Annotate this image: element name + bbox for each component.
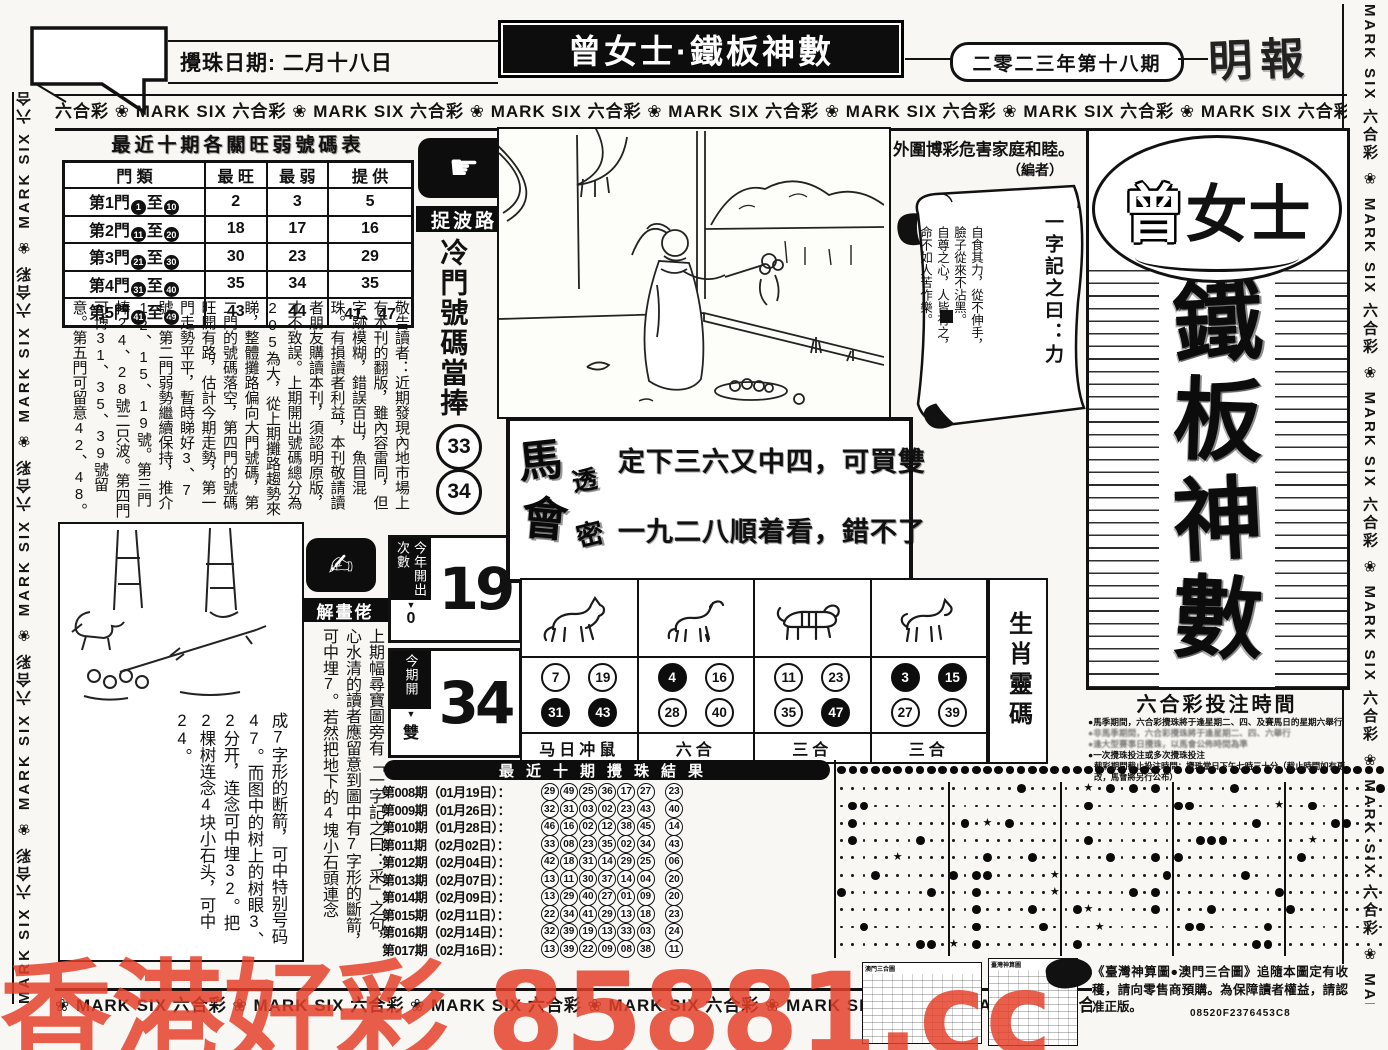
special-star: ★ [1308, 835, 1318, 846]
special-number-ball: 14 [665, 818, 683, 836]
drawn-dot [1106, 853, 1115, 862]
horse-sketch-icon [522, 580, 637, 658]
tiger-sketch-icon [755, 580, 870, 658]
number-ball: 42 [541, 853, 559, 871]
drawn-dot [1174, 853, 1183, 862]
special-number-ball: 23 [665, 905, 683, 923]
hot-cold-header-row: 門 類最 旺最 弱提 供 [64, 162, 413, 189]
jockey-club-stamp: 馬會透密 [510, 421, 614, 579]
number-ball: 29 [541, 783, 559, 801]
brand-name: 曾女士 [1122, 164, 1311, 254]
drawn-dot [1151, 888, 1160, 897]
gate-cell: 第3門21至30 [64, 243, 205, 271]
number-ball: 04 [637, 870, 655, 888]
number-ball: 16 [560, 818, 578, 836]
result-row: 第012期（02月04日）：42183114292506 [382, 853, 832, 871]
writing-hand-icon: ✍ [306, 538, 376, 592]
zodiac-ball: 35 [774, 698, 803, 727]
special-star: ★ [893, 852, 903, 863]
number-ball: 30 [579, 870, 597, 888]
betting-bullet: ●一次攪珠投注或多次攪珠投注 [1088, 750, 1346, 761]
number-ball: 27 [637, 783, 655, 801]
number-ball: 01 [617, 888, 635, 906]
special-star: ★ [1274, 800, 1284, 811]
period-label: 今期開 [403, 651, 420, 709]
number-ball: 23 [579, 835, 597, 853]
number-ball: 25 [637, 853, 655, 871]
special-number-ball: 20 [665, 888, 683, 906]
drawn-dot [1174, 802, 1183, 811]
zodiac-numbers: 11233547 [755, 658, 870, 734]
special-number-ball: 20 [665, 870, 683, 888]
scroll-line: 自尊之心，人皆有之， [933, 226, 950, 401]
drawn-dot [1028, 905, 1037, 914]
drawn-dot [961, 819, 970, 828]
result-row: 第010期（01月28日）：46160212384514 [382, 818, 832, 836]
period-number: 34 [431, 651, 519, 755]
range-ball: 20 [164, 227, 179, 242]
number-ball: 02 [617, 835, 635, 853]
number-ball: 09 [637, 888, 655, 906]
hot-cold-row: 第3門21至30302329 [64, 243, 413, 271]
number-ball: 18 [637, 905, 655, 923]
editor-note: 外圍博彩危害家庭和睦。 （編者） [893, 136, 1089, 180]
stat-cell: 3 [267, 188, 329, 216]
special-number-ball: 43 [665, 835, 683, 853]
special-number-ball: 06 [665, 853, 683, 871]
hot-cold-row: 第4門31至40353435 [64, 271, 413, 299]
drawn-dot [983, 853, 992, 862]
reader-notice: 敬告讀者：近期發現內地市場上有本刊的翻版，雖內容雷同，但字跡模糊，錯誤百出，魚目… [62, 298, 412, 520]
number-ball: 02 [598, 800, 616, 818]
betting-bullet: ●非馬季期間，六合彩攪珠將于逢星期二、四、六舉行 [1088, 728, 1346, 739]
editor-note-line2: （編者） [893, 160, 1089, 180]
drawn-dot [1241, 871, 1250, 880]
issue-pill: 二零二三年第十八期 [950, 42, 1184, 82]
range-ball: 10 [164, 200, 179, 215]
drawn-dot [949, 871, 958, 880]
number-ball: 29 [617, 853, 635, 871]
special-number-ball: 40 [665, 800, 683, 818]
stat-cell: 2 [205, 188, 267, 216]
calligraphy-character: 數 [1171, 568, 1264, 670]
zodiac-column: 11233547三合 [753, 580, 870, 762]
hot-cold-row: 第1門1至10235 [64, 188, 413, 216]
brand-oval: 曾女士 [1092, 135, 1342, 283]
zodiac-ball: 43 [588, 698, 617, 727]
range-ball: 1 [131, 200, 146, 215]
zodiac-relation-label: 三合 [755, 734, 870, 762]
drawn-dot [1129, 888, 1138, 897]
drawn-dot [1275, 888, 1284, 897]
result-row: 第013期（02月07日）：13113037140420 [382, 871, 832, 889]
special-star: ★ [1050, 870, 1060, 881]
drawn-dot [1331, 819, 1340, 828]
drawn-dot [848, 802, 857, 811]
stat-cell: 30 [205, 243, 267, 271]
scroll-text: 一字記之曰：力 自食其力，從不伸手，臉子從來不沾黑。自尊之心，人皆有之，命不如人… [916, 212, 1066, 402]
brand-character: 士 [1249, 181, 1312, 250]
drawn-dot [972, 905, 981, 914]
zodiac-side-label: 生肖靈碼 [988, 578, 1048, 764]
number-ball: 46 [541, 818, 559, 836]
zodiac-ball: 3 [891, 663, 920, 692]
draw-date: 攪珠日期: 二月十八日 [168, 47, 393, 77]
betting-bullet: ●馬季期間，六合彩攪珠將于逢星期二、四、及賽馬日的星期六舉行 [1088, 717, 1346, 728]
matrix-row: ★ [836, 832, 1386, 849]
number-ball: 12 [598, 818, 616, 836]
matrix-row: ★ [836, 901, 1386, 918]
gate-cell: 第1門1至10 [64, 188, 205, 216]
result-row: 第015期（02月11日）：22344129131823 [382, 906, 832, 924]
drawn-dot [972, 871, 981, 880]
number-ball: 36 [598, 783, 616, 801]
range-ball: 31 [131, 282, 146, 297]
drawn-dot [848, 836, 857, 845]
drawn-dot [1151, 853, 1160, 862]
betting-bullets: ●馬季期間，六合彩攪珠將于逢星期二、四、及賽馬日的星期六舉行●非馬季期間，六合彩… [1088, 717, 1346, 761]
newspaper-logo: 明報 [1207, 22, 1313, 90]
zodiac-relation-label: 三合 [872, 734, 987, 762]
zodiac-ball: 40 [705, 698, 734, 727]
number-ball: 14 [598, 853, 616, 871]
result-row: 第009期（01月26日）：32310302234340 [382, 801, 832, 819]
drawn-dot [1376, 784, 1385, 793]
number-ball: 34 [560, 905, 578, 923]
drawn-dot [1163, 871, 1172, 880]
drawn-dot [1028, 853, 1037, 862]
stat-cell: 35 [328, 271, 412, 299]
matrix-row: ★ [836, 866, 1386, 883]
drawn-dot [1252, 819, 1261, 828]
main-illustration [497, 127, 891, 419]
zodiac-ball: 19 [588, 663, 617, 692]
stat-cell: 18 [205, 216, 267, 244]
special-star: ★ [983, 818, 993, 829]
number-ball: 29 [598, 905, 616, 923]
drawn-dot [972, 888, 981, 897]
drawn-dot [1129, 784, 1138, 793]
interpreter-badge: 解畫佬 [302, 598, 388, 622]
zodiac-relation-label: 六合 [639, 734, 754, 762]
betting-bullet: ●逢大型賽事日攪珠，以馬會公佈時間為準 [1088, 739, 1346, 750]
matrix-row: ★ [836, 815, 1386, 832]
zodiac-column: 7193143马日冲鼠 [522, 580, 637, 762]
stat-cell: 34 [267, 271, 329, 299]
zodiac-ball: 39 [938, 698, 967, 727]
cold-pick-ball: 34 [436, 469, 482, 515]
brand-panel: 鐵板神數 曾女士 [1086, 128, 1350, 690]
drawn-dot [837, 888, 846, 897]
zodiac-ball: 7 [541, 663, 570, 692]
gate-cell: 第2門11至20 [64, 216, 205, 244]
drawn-dot [1005, 819, 1014, 828]
period-parity: 雙 [403, 719, 419, 743]
number-ball: 43 [637, 800, 655, 818]
drawn-dot [1308, 802, 1317, 811]
zodiac-column: 4162840六合 [637, 580, 754, 762]
drawn-dot [1230, 784, 1239, 793]
number-ball: 02 [579, 818, 597, 836]
scroll-line: 自食其力，從不伸手， [967, 226, 984, 401]
zodiac-number-table: 7193143马日冲鼠4162840六合11233547三合3152739三合 [520, 578, 988, 764]
drawn-dot [927, 888, 936, 897]
drawn-dot [860, 802, 869, 811]
jockey-club-tips-banner: 馬會透密 定下三六又中四，可買雙 一九二八順着看，錯不了 [506, 417, 913, 583]
drawn-dot [1151, 905, 1160, 914]
scroll-lines: 自食其力，從不伸手，臉子從來不沾黑。自尊之心，人皆有之，命不如人苦作樂。 [916, 226, 984, 401]
number-ball: 03 [579, 800, 597, 818]
stamp-character: 會 [519, 481, 571, 551]
gate-cell: 第4門31至40 [64, 271, 205, 299]
zodiac-relation-label: 马日冲鼠 [522, 734, 637, 762]
number-ball: 13 [617, 905, 635, 923]
stat-cell: 17 [267, 216, 329, 244]
tip-line-1: 定下三六又中四，可買雙 [618, 427, 903, 497]
stat-cell: 29 [328, 243, 412, 271]
number-ball: 27 [598, 888, 616, 906]
number-ball: 22 [541, 905, 559, 923]
number-ball: 13 [541, 888, 559, 906]
drawn-dot [1106, 784, 1115, 793]
year-count-box: 今年開出次數 ▼ 0 19 [388, 535, 522, 643]
newspaper-page: MARK SIX 六合彩 ❀ MARK SIX 六合彩 ❀ MARK SIX 六… [0, 0, 1388, 1050]
drawn-dot [1073, 905, 1082, 914]
matrix-row: ★ [836, 797, 1386, 814]
range-ball: 40 [164, 282, 179, 297]
stat-cell: 5 [328, 188, 412, 216]
special-number-ball: 23 [665, 783, 683, 801]
calligraphy-character: 鐵 [1170, 271, 1265, 375]
result-row: 第008期（01月19日）：29492536172723 [382, 783, 832, 801]
number-ball: 14 [617, 870, 635, 888]
header-rule-left [905, 58, 951, 60]
number-ball: 25 [579, 783, 597, 801]
cold-number-headline: 冷門號碼當捧 [438, 238, 467, 424]
number-ball: 08 [560, 835, 578, 853]
number-ball: 32 [541, 800, 559, 818]
number-ball: 37 [598, 870, 616, 888]
drawn-dot [1017, 784, 1026, 793]
number-ball: 31 [579, 853, 597, 871]
drawn-dot [1196, 836, 1205, 845]
calligraphy-character: 板 [1171, 370, 1264, 472]
picture-story-left: 成7字形的断箭，可中特别号码47。而图中的树上的树眼3、2分开，连念可中埋32。… [66, 712, 290, 948]
zodiac-numbers: 4162840 [639, 658, 754, 734]
drawn-dot [1219, 836, 1228, 845]
stat-cell: 16 [328, 216, 412, 244]
number-ball: 33 [541, 835, 559, 853]
iron-board-calligraphy: 鐵板神數 [1089, 273, 1347, 669]
number-ball: 29 [560, 888, 578, 906]
draw-date-box: 攪珠日期: 二月十八日 [168, 40, 498, 84]
drawn-dot [1342, 819, 1351, 828]
zodiac-ball: 15 [938, 663, 967, 692]
range-ball: 11 [131, 227, 146, 242]
drawn-dot [848, 819, 857, 828]
betting-deadline: 截彩期間截止投注時間：攪珠當日下午七時三十分（截止時間如有更改，馬會將另行公布） [1088, 761, 1346, 783]
hot-cold-row: 第2門11至20181716 [64, 216, 413, 244]
stamp-character: 馬 [515, 423, 565, 491]
down-arrow-icon: ▼ [407, 709, 416, 719]
zodiac-ball: 27 [891, 698, 920, 727]
betting-times-box: 六合彩投注時間 ●馬季期間，六合彩攪珠將于逢星期二、四、及賽馬日的星期六舉行●非… [1088, 688, 1346, 783]
year-count-label: 今年開出次數 [394, 538, 428, 600]
drawn-dot [871, 871, 880, 880]
site-watermark: 香港好彩 85881.cc [0, 922, 1388, 1050]
matrix-row: ★ [836, 884, 1386, 901]
special-star: ★ [1083, 904, 1093, 915]
drawn-dot [1207, 836, 1216, 845]
zodiac-ball: 23 [821, 663, 850, 692]
number-ball: 17 [617, 783, 635, 801]
zodiac-numbers: 3152739 [872, 658, 987, 734]
stamp-character: 透 [569, 459, 600, 499]
result-row: 第014期（02月09日）：13294027010920 [382, 888, 832, 906]
editor-note-line1: 外圍博彩危害家庭和睦。 [893, 136, 1089, 160]
picture-story-right: 上期幅尋寶圖旁有「一字記之曰：采」之句，心水清的讀者應留意到圖中有7字形的斷箭，… [264, 628, 386, 958]
number-ball: 40 [579, 888, 597, 906]
number-ball: 13 [541, 870, 559, 888]
calligraphy-character: 神 [1170, 469, 1265, 573]
number-ball: 35 [598, 835, 616, 853]
stat-cell: 23 [267, 243, 329, 271]
drawn-dot [1084, 802, 1093, 811]
number-ball: 23 [617, 800, 635, 818]
stamp-character: 密 [572, 510, 608, 554]
number-ball: 38 [617, 818, 635, 836]
range-ball: 21 [131, 255, 146, 270]
period-box: 今期開 ▼ 雙 34 [388, 648, 522, 758]
drawn-dot [1297, 853, 1306, 862]
number-ball: 18 [560, 853, 578, 871]
hot-cold-title: 最近十期各關旺弱號碼表 [62, 130, 414, 157]
drawn-dot [1286, 905, 1295, 914]
hot-cold-header: 最 弱 [267, 162, 329, 189]
brand-character: 曾 [1122, 181, 1185, 250]
results-title-bar: 最近十期攪珠結果 [384, 760, 830, 780]
number-ball: 49 [560, 783, 578, 801]
scroll-title: 一字記之曰：力 [1039, 212, 1066, 392]
zodiac-numbers: 7193143 [522, 658, 637, 734]
goat-sketch-icon [639, 580, 754, 658]
tip-line-2: 一九二八順着看，錯不了 [618, 497, 903, 567]
matrix-row: ★ [836, 849, 1386, 866]
result-row: 第011期（02月02日）：33082335023443 [382, 836, 832, 854]
range-ball: 30 [164, 255, 179, 270]
hot-cold-header: 提 供 [328, 162, 412, 189]
zodiac-ball: 16 [705, 663, 734, 692]
special-star: ★ [1083, 783, 1093, 794]
left-edge-band: MARK SIX 六合彩 ❀ MARK SIX 六合彩 ❀ MARK SIX 六… [12, 92, 50, 1004]
down-arrow-icon: ▼ [407, 600, 416, 610]
drawn-dot [1207, 905, 1216, 914]
drawn-dot [1084, 836, 1093, 845]
top-marksix-band: 六合彩 ❀ MARK SIX 六合彩 ❀ MARK SIX 六合彩 ❀ MARK… [55, 94, 1347, 131]
zodiac-ball: 4 [658, 663, 687, 692]
zodiac-column: 3152739三合 [870, 580, 987, 762]
drawn-dot [1185, 802, 1194, 811]
zodiac-ball: 11 [774, 663, 803, 692]
dog-sketch-icon [872, 580, 987, 658]
tree-deer-sketch [60, 524, 296, 710]
year-count-value: 0 [407, 610, 416, 628]
betting-times-title: 六合彩投注時間 [1088, 688, 1346, 717]
hot-cold-header: 最 旺 [205, 162, 267, 189]
drawn-dot [916, 836, 925, 845]
masthead-title: 曾女士·鐵板神數 [498, 20, 904, 78]
special-star: ★ [1050, 887, 1060, 898]
scroll-line: 臉子從來不沾黑。 [950, 226, 967, 401]
cold-pick-ball: 33 [436, 424, 482, 470]
number-ball: 34 [637, 835, 655, 853]
number-ball: 31 [560, 800, 578, 818]
zodiac-ball: 31 [541, 698, 570, 727]
number-ball: 11 [560, 870, 578, 888]
drawn-dot [1151, 784, 1160, 793]
zodiac-ball: 47 [821, 698, 850, 727]
number-ball: 45 [637, 818, 655, 836]
scroll-line: 命不如人苦作樂。 [916, 226, 933, 401]
brand-character: 女 [1185, 181, 1248, 250]
hot-cold-header: 門 類 [64, 162, 205, 189]
stat-cell: 35 [205, 271, 267, 299]
header-rule-right [1178, 58, 1208, 60]
drawn-dot [983, 871, 992, 880]
zodiac-ball: 28 [658, 698, 687, 727]
number-ball: 41 [579, 905, 597, 923]
